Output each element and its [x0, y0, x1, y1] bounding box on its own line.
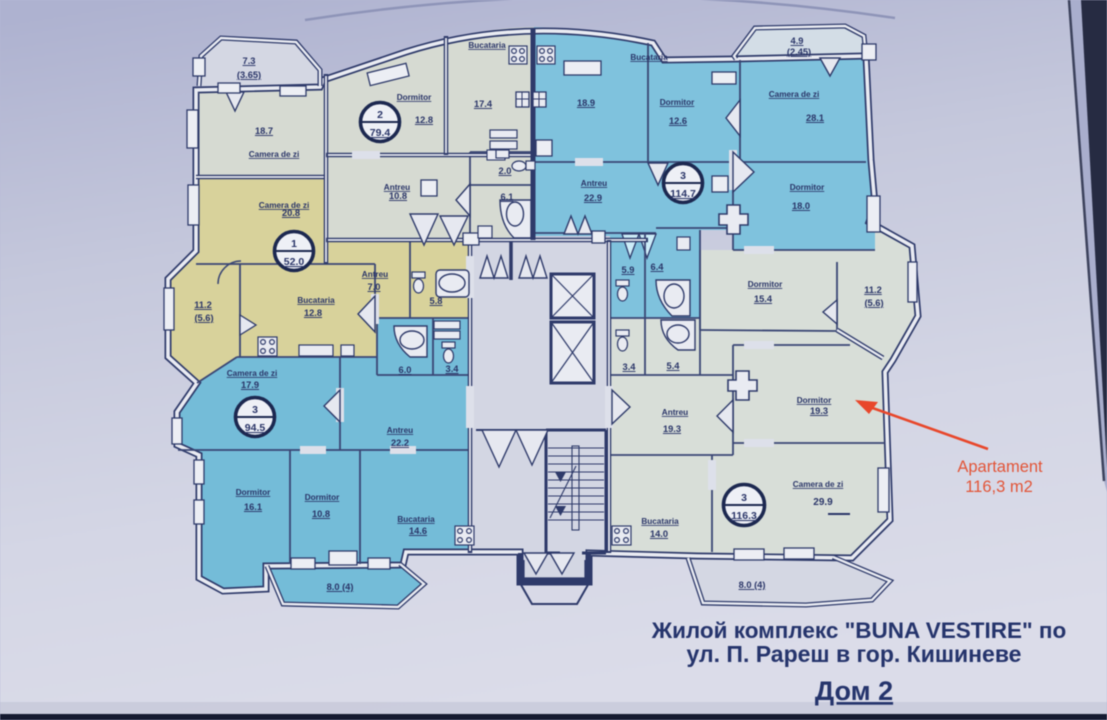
svg-text:14.0: 14.0: [650, 529, 668, 539]
svg-text:94.5: 94.5: [245, 422, 266, 434]
svg-text:114.7: 114.7: [670, 188, 696, 200]
svg-text:17.9: 17.9: [241, 380, 259, 390]
svg-text:20.8: 20.8: [282, 208, 300, 218]
svg-text:(5.6): (5.6): [864, 298, 883, 308]
svg-text:3.4: 3.4: [623, 362, 637, 372]
svg-text:2.0: 2.0: [499, 166, 512, 176]
svg-text:4.9: 4.9: [791, 36, 804, 46]
svg-text:5.8: 5.8: [430, 296, 443, 306]
svg-text:Bucataria: Bucataria: [397, 515, 435, 524]
svg-text:Dormitor: Dormitor: [305, 493, 340, 502]
svg-text:14.6: 14.6: [409, 526, 427, 536]
svg-text:Antreu: Antreu: [581, 179, 607, 188]
svg-text:3: 3: [680, 170, 686, 182]
svg-text:Antreu: Antreu: [362, 270, 388, 279]
svg-text:Camera de zi: Camera de zi: [769, 90, 820, 99]
svg-text:Bucataria: Bucataria: [641, 517, 679, 526]
svg-text:19.3: 19.3: [810, 406, 828, 416]
svg-text:18.0: 18.0: [792, 201, 810, 211]
svg-text:1: 1: [291, 238, 297, 250]
svg-text:52.0: 52.0: [284, 256, 305, 268]
svg-text:12.8: 12.8: [415, 115, 433, 125]
svg-text:6.0: 6.0: [399, 365, 412, 375]
svg-text:11.2: 11.2: [864, 285, 882, 295]
svg-text:8.0 (4): 8.0 (4): [327, 582, 354, 592]
svg-text:15.4: 15.4: [754, 294, 773, 304]
svg-text:7.0: 7.0: [368, 282, 381, 292]
svg-text:Dormitor: Dormitor: [797, 396, 832, 405]
svg-text:18.9: 18.9: [577, 98, 595, 108]
svg-text:6.4: 6.4: [651, 262, 665, 272]
svg-text:16.1: 16.1: [244, 502, 262, 512]
svg-text:17.4: 17.4: [474, 99, 493, 109]
svg-text:3.4: 3.4: [446, 364, 460, 374]
svg-text:7.3: 7.3: [243, 56, 256, 66]
svg-text:Antreu: Antreu: [387, 426, 413, 435]
svg-text:Dormitor: Dormitor: [397, 93, 432, 102]
svg-text:ул. П. Рареш в гор. Кишиневе: ул. П. Рареш в гор. Кишиневе: [687, 641, 1022, 667]
svg-text:12.6: 12.6: [669, 116, 687, 126]
svg-text:8.0 (4): 8.0 (4): [739, 580, 766, 590]
svg-text:(2.45): (2.45): [787, 47, 811, 57]
svg-text:11.2: 11.2: [194, 300, 212, 310]
svg-text:Camera de zi: Camera de zi: [249, 150, 300, 159]
svg-text:10.8: 10.8: [389, 191, 407, 201]
svg-text:29.9: 29.9: [813, 497, 833, 508]
svg-text:6.1: 6.1: [501, 192, 514, 202]
svg-text:Bucataria: Bucataria: [468, 41, 506, 50]
svg-text:Apartament: Apartament: [957, 458, 1043, 476]
svg-text:5.4: 5.4: [667, 361, 681, 371]
svg-text:(5.6): (5.6): [194, 313, 213, 323]
svg-text:22.2: 22.2: [391, 438, 409, 448]
svg-text:79.4: 79.4: [370, 127, 391, 139]
svg-text:Дом 2: Дом 2: [815, 676, 893, 706]
svg-text:5.9: 5.9: [622, 265, 635, 275]
svg-text:Bucataria: Bucataria: [297, 296, 335, 305]
svg-text:Antreu: Antreu: [662, 408, 688, 417]
svg-text:2: 2: [377, 109, 383, 121]
svg-text:Camera de zi: Camera de zi: [793, 480, 844, 489]
svg-text:(3.65): (3.65): [237, 70, 261, 80]
svg-text:Dormitor: Dormitor: [748, 280, 783, 289]
svg-text:Dormitor: Dormitor: [236, 488, 271, 497]
svg-text:116.3: 116.3: [731, 510, 757, 522]
svg-text:Жилой комплекс "BUNA VESTIRE": Жилой комплекс "BUNA VESTIRE" по: [651, 618, 1066, 643]
svg-text:12.8: 12.8: [304, 308, 322, 318]
svg-text:3: 3: [741, 492, 747, 504]
svg-text:116,3 m2: 116,3 m2: [965, 478, 1033, 496]
svg-text:Dormitor: Dormitor: [790, 183, 825, 192]
svg-text:10.8: 10.8: [312, 509, 330, 519]
svg-text:Dormitor: Dormitor: [660, 98, 695, 107]
svg-text:Camera de zi: Camera de zi: [227, 369, 278, 378]
svg-text:19.3: 19.3: [663, 424, 681, 434]
svg-text:28.1: 28.1: [806, 113, 824, 123]
svg-text:Bucataria: Bucataria: [630, 53, 668, 62]
svg-text:18.7: 18.7: [255, 126, 273, 136]
svg-text:3: 3: [252, 404, 258, 416]
svg-text:22.9: 22.9: [584, 193, 602, 203]
